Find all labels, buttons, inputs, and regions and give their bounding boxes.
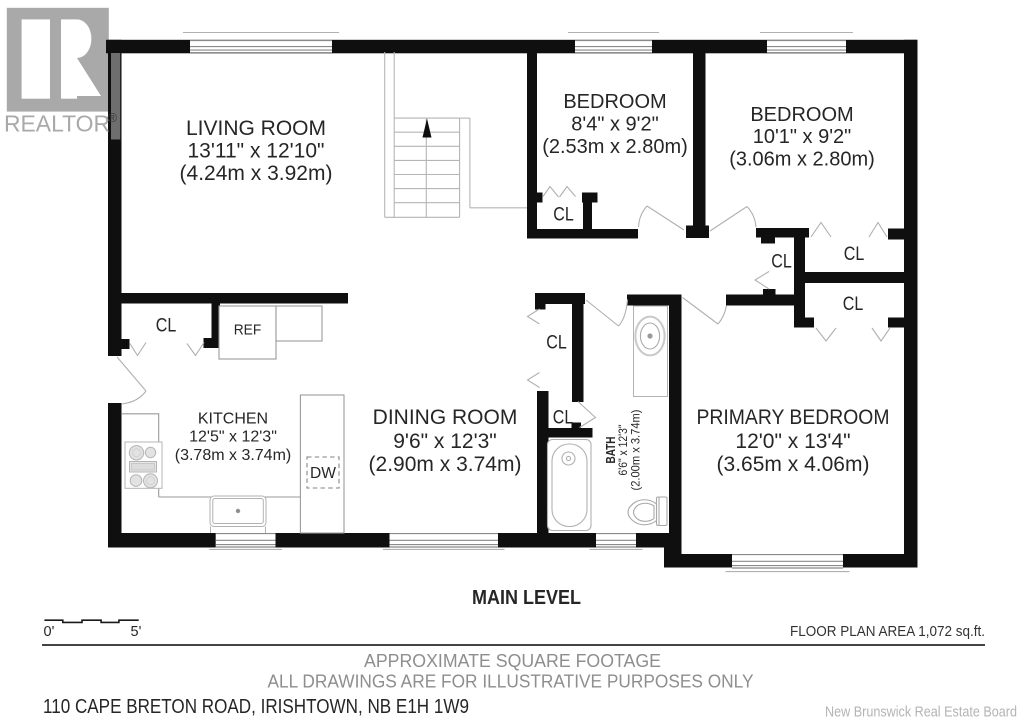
svg-text:8'4" x 9'2": 8'4" x 9'2" bbox=[571, 114, 658, 136]
svg-text:BEDROOM: BEDROOM bbox=[563, 91, 666, 113]
svg-text:DINING ROOM: DINING ROOM bbox=[373, 406, 518, 429]
svg-text:(3.06m x 2.80m): (3.06m x 2.80m) bbox=[729, 149, 875, 171]
svg-text:0': 0' bbox=[44, 624, 55, 640]
svg-text:KITCHEN: KITCHEN bbox=[198, 411, 268, 428]
svg-text:CL: CL bbox=[843, 293, 864, 315]
svg-text:New Brunswick Real Estate Boar: New Brunswick Real Estate Board bbox=[825, 705, 1017, 721]
svg-text:CL: CL bbox=[771, 251, 792, 273]
svg-text:(2.90m x 3.74m): (2.90m x 3.74m) bbox=[369, 453, 522, 476]
svg-text:BEDROOM: BEDROOM bbox=[750, 104, 853, 126]
svg-text:12'5" x 12'3": 12'5" x 12'3" bbox=[189, 429, 277, 446]
svg-text:MAIN LEVEL: MAIN LEVEL bbox=[472, 586, 581, 609]
svg-text:FLOOR PLAN AREA 1,072 sq.ft.: FLOOR PLAN AREA 1,072 sq.ft. bbox=[790, 623, 985, 640]
svg-text:CL: CL bbox=[553, 407, 574, 429]
svg-text:CL: CL bbox=[844, 243, 865, 265]
svg-text:PRIMARY BEDROOM: PRIMARY BEDROOM bbox=[697, 406, 890, 429]
svg-text:12'0" x 13'4": 12'0" x 13'4" bbox=[735, 430, 850, 453]
svg-text:110 CAPE BRETON ROAD, IRISHTOW: 110 CAPE BRETON ROAD, IRISHTOWN, NB E1H … bbox=[43, 696, 469, 718]
svg-text:(4.24m x 3.92m): (4.24m x 3.92m) bbox=[180, 162, 333, 185]
svg-text:CL: CL bbox=[156, 315, 177, 337]
svg-text:10'1" x 9'2": 10'1" x 9'2" bbox=[753, 126, 852, 148]
svg-text:13'11" x 12'10": 13'11" x 12'10" bbox=[188, 140, 325, 163]
svg-text:CL: CL bbox=[553, 204, 574, 226]
svg-text:9'6" x 12'3": 9'6" x 12'3" bbox=[393, 430, 497, 453]
svg-text:DW: DW bbox=[310, 465, 336, 482]
svg-text:CL: CL bbox=[546, 332, 567, 354]
svg-text:(2.53m x 2.80m): (2.53m x 2.80m) bbox=[542, 136, 688, 158]
svg-text:ALL DRAWINGS ARE FOR ILLUSTRAT: ALL DRAWINGS ARE FOR ILLUSTRATIVE PURPOS… bbox=[268, 672, 754, 692]
svg-text:(2.00m x 3.74m): (2.00m x 3.74m) bbox=[629, 410, 643, 491]
svg-text:5': 5' bbox=[131, 624, 142, 640]
svg-text:®: ® bbox=[108, 110, 118, 125]
svg-text:(3.65m x 4.06m): (3.65m x 4.06m) bbox=[717, 453, 870, 476]
svg-text:LIVING ROOM: LIVING ROOM bbox=[186, 117, 326, 140]
svg-text:REALTOR: REALTOR bbox=[4, 111, 110, 137]
svg-text:APPROXIMATE SQUARE FOOTAGE: APPROXIMATE SQUARE FOOTAGE bbox=[364, 651, 661, 671]
svg-text:(3.78m x 3.74m): (3.78m x 3.74m) bbox=[175, 447, 291, 464]
svg-text:REF: REF bbox=[234, 322, 262, 339]
